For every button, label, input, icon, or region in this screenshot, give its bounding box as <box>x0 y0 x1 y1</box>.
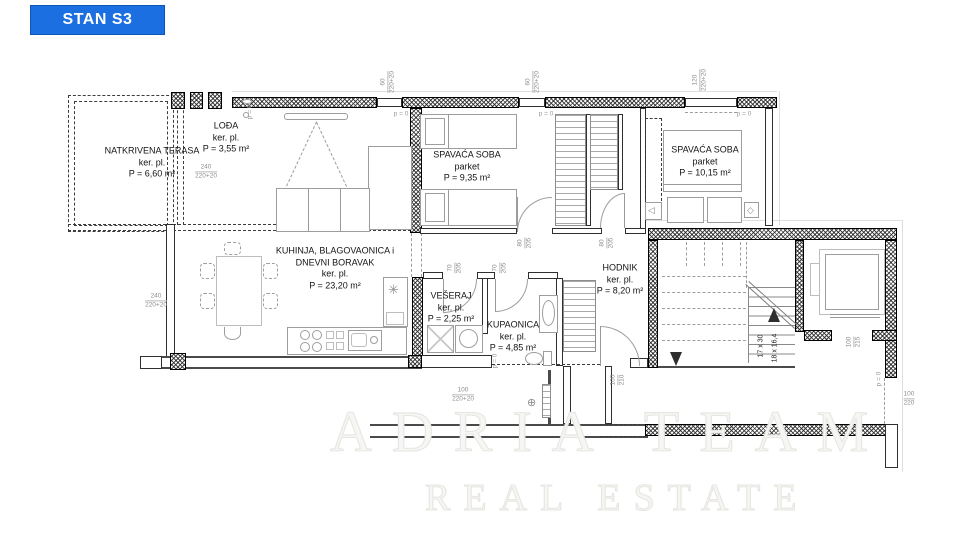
stair-dash-h1 <box>662 276 746 277</box>
elevator-car-inner <box>825 254 879 310</box>
wardrobe-corridor <box>590 114 618 190</box>
parapet-column <box>170 353 186 370</box>
stair-dash-h5 <box>662 340 746 341</box>
sofa-divider <box>340 188 341 232</box>
roof-contour-right <box>779 91 780 225</box>
door-arc-kupaonica <box>495 279 528 312</box>
dimension-label: 80205 <box>598 238 615 249</box>
room-label-kuhinja: KUHINJA, BLAGOVAONICA iDNEVNI BORAVAKker… <box>276 246 394 293</box>
wall-bottom-bath <box>420 355 492 368</box>
stove-burner <box>300 330 310 340</box>
dryer-space <box>427 325 454 353</box>
column <box>190 92 203 109</box>
room-label-hodnik: HODNIKker. pl.P = 8,20 m² <box>597 262 644 297</box>
column <box>171 92 185 109</box>
elevator-door-line-1 <box>830 314 880 315</box>
chair <box>224 327 241 340</box>
wall-bottom-bath-hatch <box>408 355 422 368</box>
door-leaf-bedroom1 <box>517 197 518 232</box>
dimension-label: 60220+20 <box>524 71 541 93</box>
hob-knob <box>336 331 344 339</box>
pillow <box>425 193 445 222</box>
wall-below-bedroom2 <box>625 228 646 234</box>
dining-table <box>216 256 262 326</box>
wardrobe-bedroom1 <box>555 114 586 226</box>
tv-sight-line-2 <box>316 122 347 187</box>
watermark-line2: REAL ESTATE <box>425 476 809 520</box>
dimension-label: 60220+20 <box>379 71 396 93</box>
wall-below-closets <box>552 228 602 234</box>
stair-tread-label: 18 x 16,4 <box>772 334 779 363</box>
door-leaf-kupaonica <box>495 279 496 312</box>
wall-bedroom2-right <box>765 108 773 226</box>
level-marker: p = 0 <box>492 354 499 369</box>
wall-elevator-stub-left <box>804 330 832 341</box>
window-opening-60 <box>377 98 402 107</box>
sofa-divider <box>308 188 309 232</box>
stair-dash-h4 <box>662 324 746 325</box>
stair-dash-v4 <box>740 242 741 266</box>
stair-bottom-line <box>658 366 795 368</box>
dimension-label: 240220+20 <box>145 292 167 309</box>
unit-badge: STAN S3 <box>30 5 165 35</box>
sink-bowl <box>351 333 367 347</box>
stair-riser-label: 17 x 30 <box>758 335 765 358</box>
hob-knob <box>326 331 334 339</box>
dimension-label: 70205 <box>491 263 508 274</box>
window-opening-60b <box>519 98 545 107</box>
door-leaf-bedroom2 <box>624 193 625 228</box>
window-west <box>166 224 175 357</box>
room-label-natkrivena-terasa: NATKRIVENA TERASAker. pl.P = 6,60 m² <box>105 145 200 180</box>
wall-stair-elevator <box>795 240 804 332</box>
wall-kitchen-veseraj <box>412 277 423 367</box>
level-marker: p = 0 <box>247 105 254 120</box>
wall-corridor-1 <box>423 272 443 279</box>
wall-closet-right <box>618 114 623 190</box>
floor-plan-canvas: STAN S3 ⊕ <box>0 0 960 540</box>
level-marker: p = 0 <box>737 111 752 118</box>
hob-knob <box>326 342 334 350</box>
entrance-door-leaf <box>600 326 601 366</box>
bed-cabinet-1 <box>667 197 704 223</box>
dimension-label: 120220+20 <box>691 69 708 91</box>
passage-dashed-1 <box>411 233 412 277</box>
dimension-label: 100210 <box>609 375 626 386</box>
kitchen-unit-shelf <box>386 312 404 325</box>
bed-divider <box>448 189 449 226</box>
window-opening-120 <box>685 98 737 107</box>
stair-dash-h3 <box>662 308 746 309</box>
passage-dashed-2 <box>421 233 422 277</box>
roof-contour-stair-right <box>902 220 903 472</box>
bed-divider <box>448 114 449 149</box>
level-marker: p = 0 <box>539 111 554 118</box>
chair <box>224 242 241 255</box>
stair-dash-v1 <box>686 242 687 266</box>
room-label-kupaonica: KUPAONICAker. pl.P = 4,85 m² <box>487 319 539 354</box>
wall-outer-right <box>885 240 897 378</box>
level-marker: p = 0 <box>876 372 883 387</box>
wall-top-right <box>737 97 777 108</box>
stove-burner <box>300 342 310 352</box>
wall-stair-left <box>648 240 658 368</box>
stair-up-arrow <box>768 308 780 322</box>
bed-foot-line <box>663 184 742 185</box>
washer-drum <box>459 329 478 348</box>
wall-corridor-3 <box>528 272 558 279</box>
window-dashed-line <box>685 112 737 113</box>
faucet <box>370 336 378 344</box>
sofa-chaise <box>368 146 412 230</box>
parapet-end <box>140 356 162 369</box>
wall-stair-top <box>648 228 897 240</box>
stair-dash-v5 <box>746 242 747 288</box>
pillow <box>425 118 445 145</box>
stair-down-arrow <box>670 352 682 366</box>
vent-arrow-icon: ◁ <box>648 206 655 215</box>
chair <box>200 293 215 309</box>
wall-top-living <box>232 97 377 108</box>
wall-top-bedroom1 <box>402 97 519 108</box>
level-marker: p = 0 <box>394 111 409 118</box>
dimension-label: 70205 <box>446 263 463 274</box>
wall-elevator-stub-right <box>872 330 897 341</box>
stair-dash-v3 <box>722 242 723 266</box>
room-label-spavaca-soba-1: SPAVAĆA SOBAparketP = 9,35 m² <box>433 149 501 184</box>
unit-badge-label: STAN S3 <box>63 11 133 29</box>
wardrobe-hodnik <box>563 280 596 352</box>
room-label-spavaca-soba-2: SPAVAĆA SOBAparketP = 10,15 m² <box>671 144 739 179</box>
dimension-label: 80205 <box>516 238 533 249</box>
dimension-label: 100215 <box>845 337 862 348</box>
entrance-door-arc <box>600 326 640 366</box>
column <box>208 92 222 109</box>
tv <box>284 113 348 120</box>
room-label-veseraj: VEŠERAJker. pl.P = 2,25 m² <box>428 290 475 325</box>
wall-top-middle <box>545 97 685 108</box>
stair-dash-h2 <box>662 292 746 293</box>
stair-dash-v2 <box>704 242 705 266</box>
watermark-line1: ADRIA TEAM <box>330 398 888 465</box>
elevator-door-line-2 <box>830 317 880 318</box>
diamond-icon: ◇ <box>747 206 754 215</box>
chair <box>263 293 278 309</box>
door-arc-bedroom2 <box>600 193 625 228</box>
sofa-main <box>276 188 370 232</box>
dimension-label: 240220+20 <box>195 163 217 180</box>
bath-sink-bowl <box>542 300 555 326</box>
tv-sight-line-1 <box>286 122 317 187</box>
stove-burner <box>312 330 322 340</box>
dimension-label: 100220 <box>904 390 915 407</box>
chair <box>200 263 215 279</box>
door-arc-bedroom1 <box>517 197 552 232</box>
stove-burner <box>312 342 322 352</box>
wall-below-bedroom1 <box>420 228 517 234</box>
hob-knob <box>336 342 344 350</box>
bed-cabinet-2 <box>707 197 742 223</box>
room-label-lodja: LOĐAker. pl.P = 3,55 m² <box>203 120 250 155</box>
lodja-fixture <box>242 99 252 104</box>
toilet-tank <box>543 351 552 366</box>
roof-contour-top <box>232 91 777 92</box>
